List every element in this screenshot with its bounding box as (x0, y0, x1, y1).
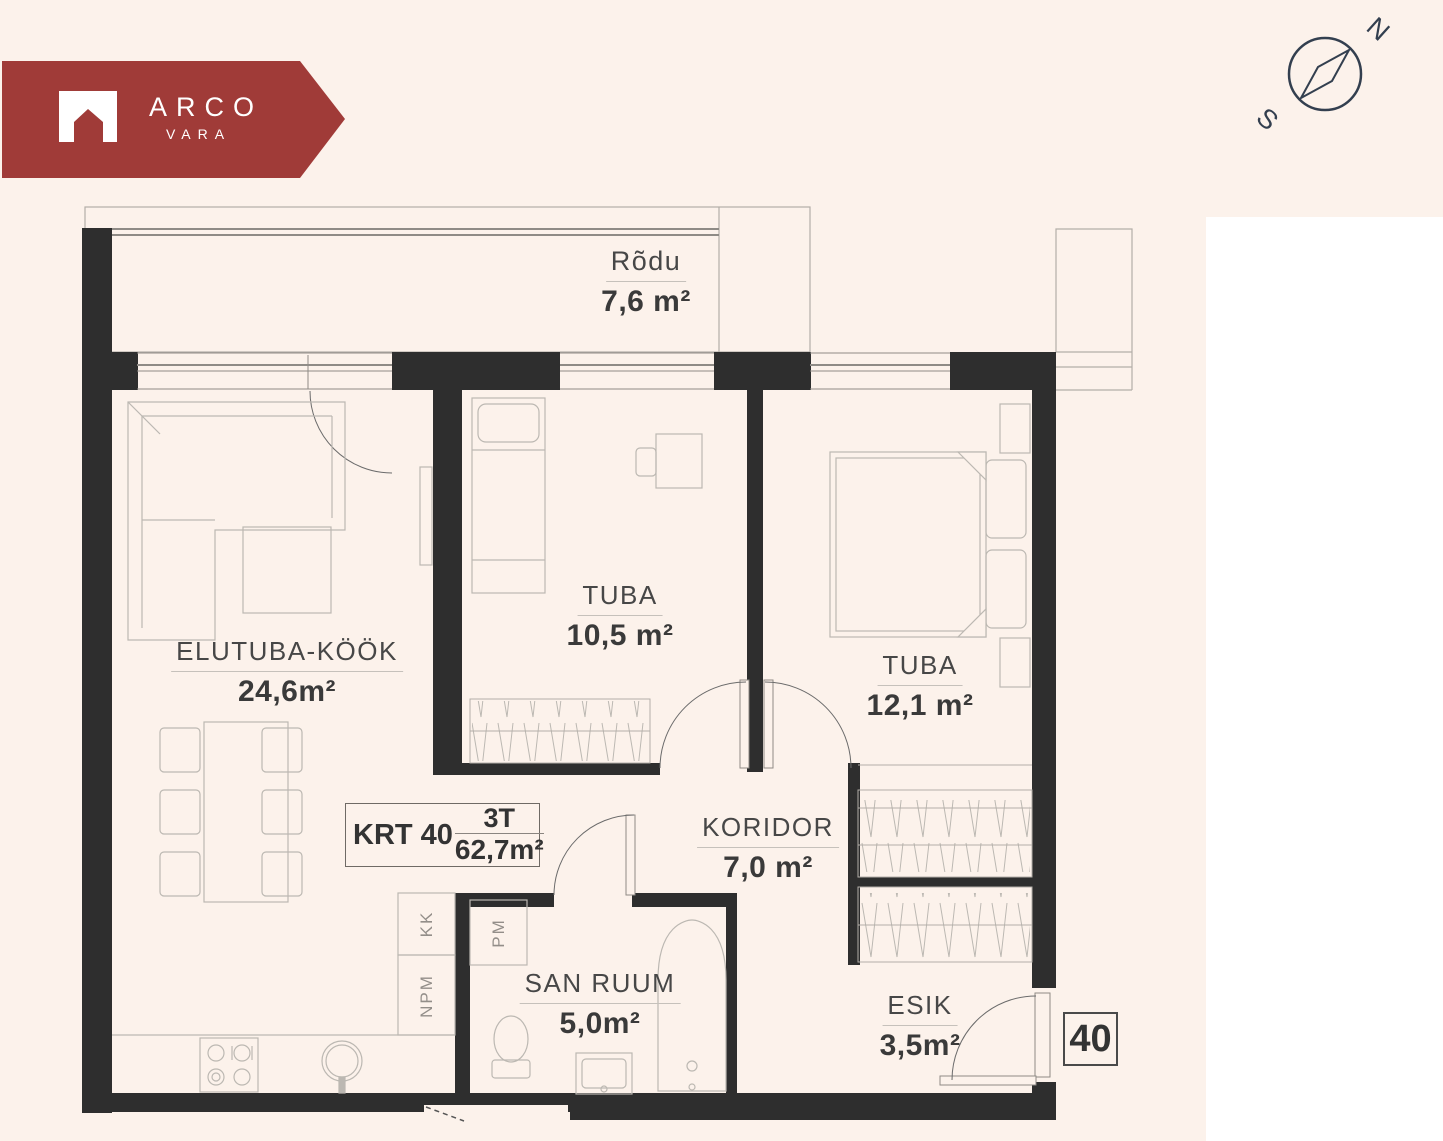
bottom-wall-notch (424, 1105, 568, 1121)
window-tuba1 (560, 353, 714, 389)
room-label-esik: ESIK 3,5m² (880, 990, 961, 1063)
closet-upper (858, 790, 1032, 877)
room-name: Rõdu (606, 246, 687, 282)
wardrobe-tuba1 (470, 699, 650, 763)
room-name: TUBA (877, 650, 962, 686)
apartment-type-area: 3T 62,7m² (455, 804, 544, 866)
room-area: 24,6m² (171, 675, 403, 709)
kitchen-sink (322, 1041, 362, 1093)
room-name: SAN RUUM (520, 968, 681, 1004)
room-area: 10,5 m² (567, 619, 674, 653)
dining-set (160, 722, 302, 902)
neighbor-balcony (1056, 229, 1132, 390)
room-label-koridor: KORIDOR 7,0 m² (697, 812, 839, 885)
apartment-unit-label: KRT 40 (346, 819, 453, 852)
tuba2-door-arc (765, 682, 851, 768)
window-livingroom (137, 353, 392, 389)
closet-lower (858, 887, 1032, 962)
room-area: 5,0m² (520, 1007, 681, 1041)
coffee-table (243, 527, 331, 613)
balcony-door-arc (310, 391, 392, 473)
sanruum-door-arc (554, 815, 634, 895)
apartment-total-area: 62,7m² (455, 834, 544, 866)
brand-subname: VARA (166, 126, 231, 142)
balcony-railing (90, 229, 719, 235)
room-area: 12,1 m² (867, 689, 974, 723)
bed-single (472, 398, 545, 593)
stove (200, 1038, 258, 1092)
apartment-info-box: KRT 40 3T 62,7m² (345, 803, 540, 867)
tuba1-door-arc (660, 682, 746, 768)
pm-fixture-label: PM (489, 918, 509, 948)
room-label-elutuba: ELUTUBA-KÖÖK 24,6m² (171, 636, 403, 709)
npm-fixture-label: NPM (417, 974, 437, 1018)
bed-double (830, 404, 1030, 687)
window-tuba2 (810, 353, 950, 389)
tuba1-door-leaf (740, 680, 749, 768)
apartment-type: 3T (455, 804, 544, 834)
room-name: ELUTUBA-KÖÖK (171, 636, 403, 672)
room-label-tuba1: TUBA 10,5 m² (567, 580, 674, 653)
room-area: 7,6 m² (601, 285, 691, 319)
brand-name: ARCO (149, 92, 263, 123)
compass-icon (1240, 0, 1443, 160)
room-name: ESIK (882, 990, 957, 1026)
desk-tuba1 (636, 434, 702, 488)
room-name: TUBA (577, 580, 662, 616)
kk-fixture-label: KK (417, 911, 437, 938)
room-label-tuba2: TUBA 12,1 m² (867, 650, 974, 723)
bathroom-sink (576, 1053, 632, 1094)
room-area: 7,0 m² (697, 851, 839, 885)
floorplan-page: ARCO VARA N S Rõdu 7,6 m² ELUTUBA-KÖÖK 2… (0, 0, 1443, 1141)
sanruum-door-leaf (626, 815, 635, 895)
room-name: KORIDOR (697, 812, 839, 848)
room-label-rodu: Rõdu 7,6 m² (601, 246, 691, 319)
apartment-number-badge: 40 (1063, 1012, 1118, 1066)
tv-stand (420, 467, 432, 565)
room-area: 3,5m² (880, 1029, 961, 1063)
tuba2-door-leaf (764, 680, 773, 768)
kitchen (112, 893, 455, 1093)
room-label-sanruum: SAN RUUM 5,0m² (520, 968, 681, 1041)
sofa (128, 402, 345, 640)
